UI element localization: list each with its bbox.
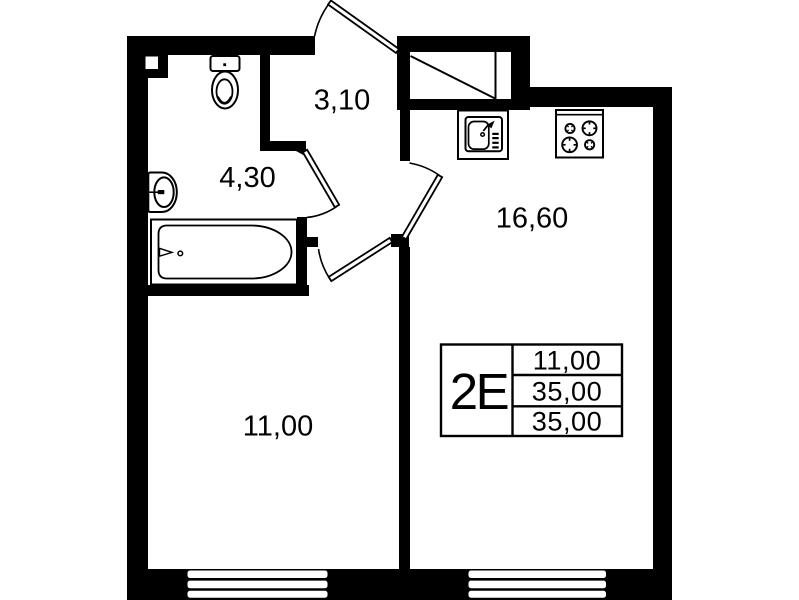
svg-text:4,30: 4,30 xyxy=(219,162,275,194)
svg-text:11,00: 11,00 xyxy=(243,411,313,443)
svg-text:3,10: 3,10 xyxy=(314,85,370,117)
svg-text:2Е: 2Е xyxy=(450,363,508,420)
svg-text:16,60: 16,60 xyxy=(496,203,569,235)
svg-text:11,00: 11,00 xyxy=(533,345,602,376)
svg-text:35,00: 35,00 xyxy=(532,376,603,407)
svg-text:35,00: 35,00 xyxy=(532,406,603,437)
